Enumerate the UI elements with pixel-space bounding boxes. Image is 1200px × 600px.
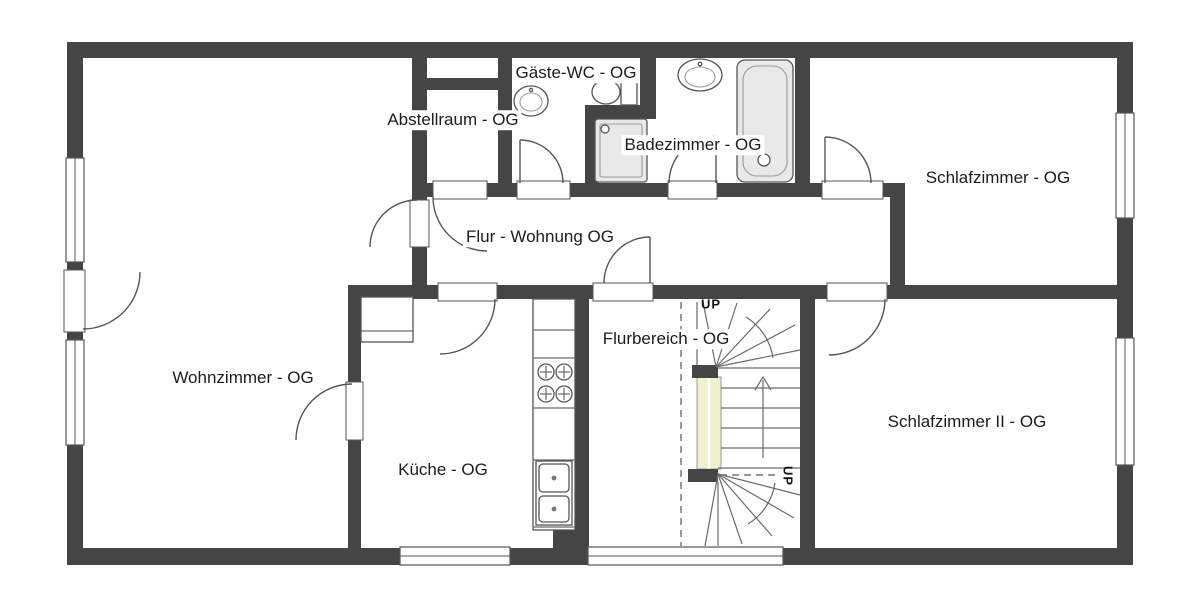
gaeste-wc-door [517, 140, 570, 199]
window-left-upper [66, 158, 84, 262]
bathtub-icon [737, 60, 793, 182]
room-label-flur: Flur - Wohnung OG [463, 227, 617, 247]
toilet-icon [592, 80, 637, 105]
wall-kitchen-stub [553, 530, 580, 549]
wohnzimmer-kueche-door [296, 382, 363, 440]
room-label-gaeste-wc: Gäste-WC - OG [513, 63, 640, 83]
room-label-flurbereich: Flurbereich - OG [600, 329, 733, 349]
stair-center-rail [688, 365, 721, 482]
double-sink-icon [536, 461, 572, 525]
plan-drawing [0, 0, 1200, 600]
wall-niche-strip [427, 78, 498, 90]
window-right-schlafzimmer2 [1116, 338, 1134, 465]
window-bottom-flurbereich [588, 547, 783, 565]
wall-wc-niche-east [640, 58, 656, 107]
stair-up-label-bottom: UP [781, 466, 796, 486]
wohnbereich-door [370, 200, 429, 247]
window-right-schlafzimmer [1116, 113, 1134, 218]
room-label-schlafzimmer: Schlafzimmer - OG [923, 168, 1074, 188]
stair-up-label-top: UP [701, 297, 721, 312]
room-label-schlafzimmer2: Schlafzimmer II - OG [885, 412, 1050, 432]
bad-washbasin-icon [678, 59, 722, 91]
room-label-badezimmer: Badezimmer - OG [622, 135, 765, 155]
kitchen-cabinet-icon [361, 297, 413, 342]
wall-stair-schlaf2-divider [800, 299, 815, 549]
room-label-abstellraum: Abstellraum - OG [384, 110, 521, 130]
window-bottom-kueche [400, 547, 510, 565]
kitchen-counter [533, 299, 575, 530]
wall-abstellraum-left [412, 58, 427, 285]
wall-flur-east [890, 197, 905, 299]
wall-kueche-stair-divider [575, 299, 589, 549]
balcony-door [64, 270, 140, 332]
wall-outer-top [67, 42, 1133, 58]
room-label-wohnzimmer: Wohnzimmer - OG [169, 368, 316, 388]
floor-plan: Gäste-WC - OG Abstellraum - OG Badezimme… [0, 0, 1200, 600]
stair-up-arrow [755, 377, 771, 458]
stair-straight-flight [718, 368, 800, 468]
kueche-door [438, 283, 497, 354]
schlafzimmer2-door [827, 283, 887, 355]
wall-bad-schlaf-divider [795, 58, 810, 197]
schlafzimmer-door [822, 137, 883, 199]
room-label-kueche: Küche - OG [395, 460, 491, 480]
window-left-lower [66, 340, 84, 445]
